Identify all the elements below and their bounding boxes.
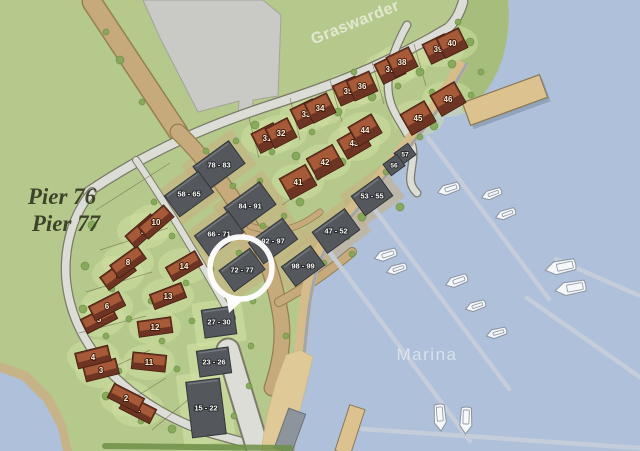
apartment-label-group: 98 - 99 (291, 262, 314, 271)
tree (151, 199, 157, 205)
house-number-group: 8 (126, 258, 131, 267)
tree (417, 134, 423, 140)
house-number-group: 10 (152, 218, 161, 227)
house-number: 3 (99, 366, 104, 375)
tree (448, 60, 456, 68)
house-number: 38 (398, 58, 407, 67)
tree (116, 56, 124, 64)
tree (169, 233, 175, 239)
apartment-label-group: 84 - 91 (238, 202, 261, 211)
apartment-27-30[interactable]: 27 - 30 (201, 306, 237, 338)
tree (416, 68, 424, 76)
house-number: 40 (448, 39, 457, 48)
house-number: 45 (414, 114, 423, 123)
house-number: 42 (321, 158, 330, 167)
apartment-23-26[interactable]: 23 - 26 (196, 347, 231, 377)
apartment-label-group: 72 - 77 (230, 266, 253, 275)
apartment-label-group: 78 - 83 (207, 161, 230, 170)
tree (233, 138, 239, 144)
house-number-group: 13 (164, 292, 173, 301)
small-house-label-group: 56 (390, 162, 398, 169)
house-number-group: 40 (448, 39, 457, 48)
tree (296, 198, 304, 206)
tree (395, 83, 401, 89)
apartment-label: 98 - 99 (291, 262, 314, 271)
tree (468, 92, 474, 98)
tree (159, 338, 165, 344)
house-number-group: 2 (124, 394, 129, 403)
house-number: 14 (180, 262, 189, 271)
small-house-label-group: 57 (401, 151, 409, 158)
house-number-group: 41 (294, 178, 303, 187)
tree (231, 413, 237, 419)
tree (103, 29, 109, 35)
house-number: 11 (145, 358, 154, 367)
house-number: 44 (361, 126, 370, 135)
tree (174, 366, 180, 372)
house-number: 10 (152, 218, 161, 227)
tree (283, 333, 289, 339)
house-number-group: 45 (414, 114, 423, 123)
small-house-label: 57 (401, 151, 409, 158)
apartment-label: 78 - 83 (207, 161, 230, 170)
tree (126, 316, 132, 322)
house-11[interactable]: 11 (131, 352, 167, 372)
apartment-label: 27 - 30 (207, 318, 230, 327)
tree (183, 280, 189, 286)
house-number: 12 (151, 323, 160, 332)
house-number-group: 44 (361, 126, 370, 135)
tree (168, 425, 176, 433)
tree (246, 383, 252, 389)
tree (79, 305, 87, 313)
tree (230, 183, 236, 189)
house-number: 2 (124, 394, 129, 403)
pier-77-label: Pier 77 (31, 211, 102, 236)
tree (478, 69, 484, 75)
house-number-group: 42 (321, 158, 330, 167)
house-number: 13 (164, 292, 173, 301)
house-number-group: 46 (444, 95, 453, 104)
tree (351, 69, 357, 75)
apartment-label: 47 - 52 (324, 227, 347, 236)
apartment-label: 15 - 22 (194, 404, 217, 413)
house-number: 36 (358, 82, 367, 91)
tree (349, 251, 355, 257)
house-number: 41 (294, 178, 303, 187)
site-plan-map: 78 - 8358 - 6584 - 9166 - 7192 - 9772 - … (0, 0, 640, 451)
tree (189, 318, 195, 324)
apartment-15-22[interactable]: 15 - 22 (186, 378, 227, 438)
house-number-group: 12 (151, 323, 160, 332)
tree (396, 203, 404, 211)
house-number-group: 4 (91, 353, 96, 362)
tree (260, 223, 266, 229)
tree (309, 129, 315, 135)
apartment-label-group: 53 - 55 (360, 192, 383, 201)
apartment-label: 72 - 77 (230, 266, 253, 275)
pier-76-label: Pier 76 (27, 184, 97, 209)
apartment-label: 53 - 55 (360, 192, 383, 201)
house-number: 34 (316, 104, 325, 113)
tree (455, 19, 461, 25)
house-number: 4 (91, 353, 96, 362)
tree (248, 343, 254, 349)
tree (203, 148, 209, 154)
marina-label: Marina (397, 345, 458, 364)
house-number-group: 14 (180, 262, 189, 271)
house-number-group: 32 (277, 129, 286, 138)
tree (103, 333, 109, 339)
small-house-label: 56 (390, 162, 398, 169)
house-number-group: 38 (398, 58, 407, 67)
tree (269, 149, 275, 155)
tree (292, 152, 300, 160)
house-number: 8 (126, 258, 131, 267)
apartment-label: 23 - 26 (202, 358, 225, 367)
apartment-label-group: 23 - 26 (202, 358, 225, 367)
house-number-group: 3 (99, 366, 104, 375)
house-number-group: 11 (145, 358, 154, 367)
apartment-label-group: 58 - 65 (177, 190, 200, 199)
hedge (105, 446, 290, 448)
house-number-group: 36 (358, 82, 367, 91)
tree (251, 121, 259, 129)
house-number: 32 (277, 129, 286, 138)
house-number: 46 (444, 95, 453, 104)
apartment-label-group: 27 - 30 (207, 318, 230, 327)
house-number: 6 (105, 302, 110, 311)
site-plan-svg: 78 - 8358 - 6584 - 9166 - 7192 - 9772 - … (0, 0, 640, 451)
tree (139, 99, 145, 105)
apartment-label: 84 - 91 (238, 202, 261, 211)
house-number-group: 34 (316, 104, 325, 113)
apartment-label-group: 47 - 52 (324, 227, 347, 236)
tree (81, 262, 89, 270)
house-number-group: 6 (105, 302, 110, 311)
apartment-label-group: 15 - 22 (194, 404, 217, 413)
apartment-label: 58 - 65 (177, 190, 200, 199)
